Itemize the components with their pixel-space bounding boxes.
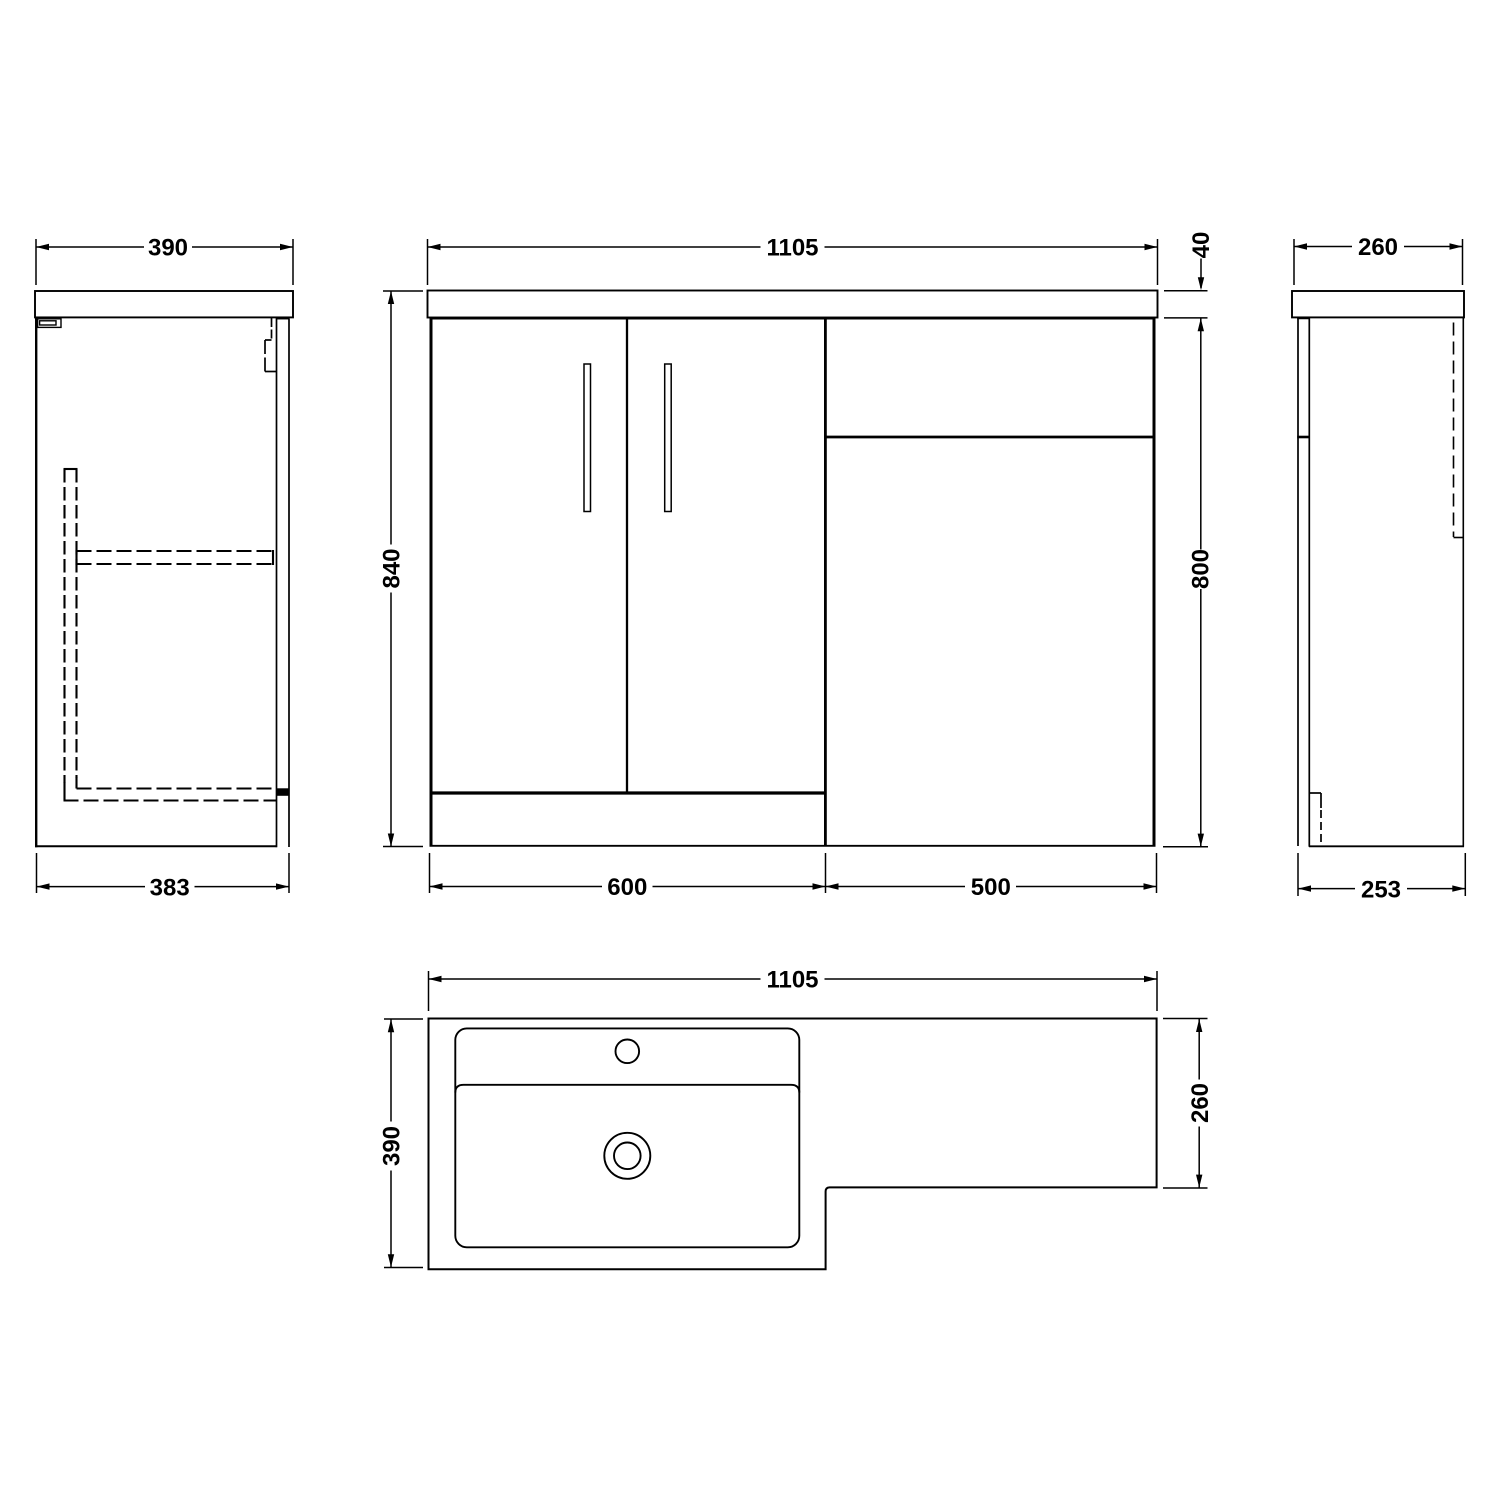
svg-text:260: 260: [1358, 234, 1398, 261]
svg-text:40: 40: [1188, 232, 1215, 259]
svg-text:500: 500: [971, 874, 1011, 901]
svg-text:260: 260: [1187, 1083, 1214, 1123]
svg-text:1105: 1105: [766, 967, 818, 994]
svg-text:390: 390: [148, 235, 188, 262]
svg-text:1105: 1105: [766, 235, 818, 262]
svg-text:840: 840: [378, 548, 405, 588]
svg-text:390: 390: [379, 1126, 406, 1166]
svg-text:383: 383: [150, 874, 190, 901]
svg-text:600: 600: [607, 874, 647, 901]
svg-text:800: 800: [1188, 549, 1215, 589]
svg-text:253: 253: [1361, 876, 1401, 903]
